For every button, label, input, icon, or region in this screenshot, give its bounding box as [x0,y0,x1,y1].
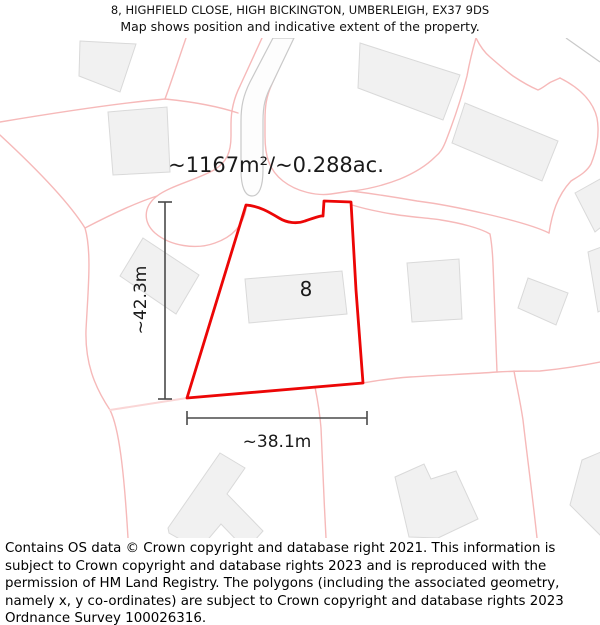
boundary-northwest-up [165,38,186,99]
height-dimension-label: ~42.3m [131,266,151,335]
property-address-title: 8, HIGHFIELD CLOSE, HIGH BICKINGTON, UMB… [0,3,600,17]
boundary-bottom-east [363,362,600,383]
building [588,240,600,312]
boundary-branch-mid-south [315,387,326,538]
building [79,41,136,92]
building [575,178,600,232]
page-header: 8, HIGHFIELD CLOSE, HIGH BICKINGTON, UMB… [0,0,600,38]
boundary-west-long [0,135,128,538]
buildings [79,41,600,538]
building [395,464,478,538]
boundary-topright-diagonal [476,38,560,90]
boundary-light-southwest [110,398,187,410]
building [168,453,263,538]
plot-number-label: 8 [300,277,313,301]
building [452,103,558,181]
building-plot-house [245,271,347,323]
boundary-branch-right-south [514,371,537,538]
building [108,107,170,175]
width-dimension-label: ~38.1m [243,432,312,452]
area-label: ~1167m²/~0.288ac. [168,153,384,177]
building [518,278,568,325]
road-edge-corner [566,38,600,62]
building [570,446,600,538]
building [407,259,462,322]
building [358,43,460,120]
map-subtitle: Map shows position and indicative extent… [0,19,600,34]
copyright-notice: Contains OS data © Crown copyright and d… [5,540,597,625]
property-map: ~1167m²/~0.288ac. 8 ~42.3m ~38.1m [0,38,600,538]
